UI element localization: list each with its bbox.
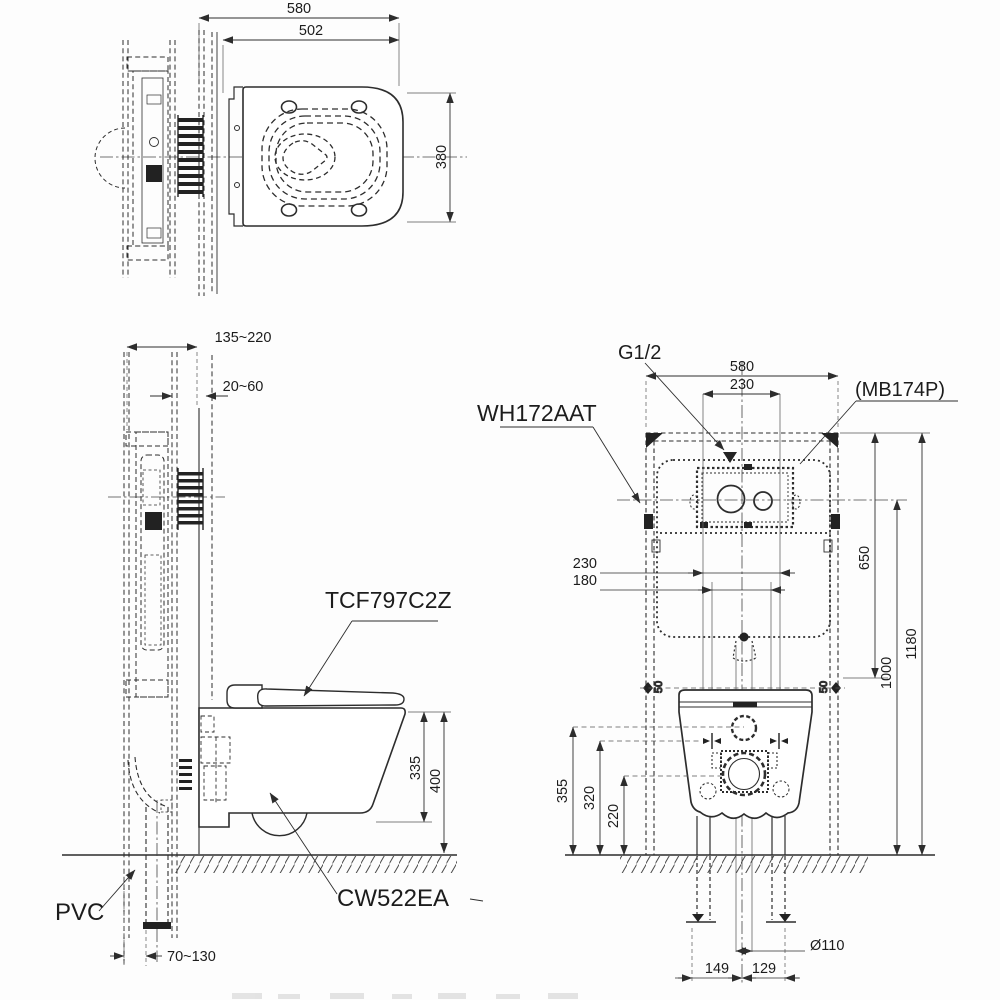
- svg-text:180: 180: [573, 573, 597, 589]
- svg-text:1000: 1000: [879, 657, 895, 689]
- sleeve-small-side: [179, 759, 192, 790]
- front-view: 50 50: [477, 342, 958, 985]
- front-dim-frame-height: 1180: [904, 433, 922, 855]
- front-dim-bolt-line: 320: [582, 741, 700, 855]
- flush-plate: [690, 464, 800, 528]
- toilet-side: [179, 685, 405, 836]
- svg-text:129: 129: [752, 961, 776, 977]
- svg-text:355: 355: [555, 779, 571, 803]
- plan-dim-seat: 502: [223, 23, 399, 93]
- side-view: 135~220 20~60: [55, 330, 483, 968]
- svg-text:580: 580: [730, 359, 754, 375]
- svg-text:20~60: 20~60: [223, 379, 264, 395]
- svg-text:1180: 1180: [904, 628, 920, 659]
- front-dim-span-narrow: 180: [573, 573, 785, 590]
- plan-view: 580 502 380: [95, 1, 467, 296]
- svg-text:TCF797C2Z: TCF797C2Z: [325, 587, 452, 613]
- label-pvc: PVC: [55, 870, 135, 926]
- trap-arc: [252, 813, 307, 836]
- toilet-plan: [229, 87, 403, 226]
- ground-side: [62, 855, 457, 873]
- side-dim-seat-height: 400: [408, 712, 451, 853]
- label-washlet: TCF797C2Z: [304, 587, 452, 696]
- svg-text:CW522EA: CW522EA: [337, 885, 449, 912]
- svg-text:(MB174P): (MB174P): [855, 379, 945, 401]
- scan-artifact: [232, 993, 578, 999]
- front-dim-span-wide: 230: [573, 556, 795, 573]
- cistern-front: [657, 452, 830, 661]
- bowl-front: [679, 690, 812, 818]
- svg-text:230: 230: [573, 556, 597, 572]
- svg-text:400: 400: [428, 769, 444, 793]
- plan-dim-overall: 580: [199, 1, 399, 86]
- drawing-canvas: 580 502 380: [0, 0, 1000, 1000]
- seat-lid: [258, 689, 404, 706]
- gap-left-label: 50: [653, 681, 665, 693]
- flush-button-large: [718, 486, 745, 513]
- toilet-plan-backplate: [229, 87, 243, 226]
- pvc-elbow: [128, 757, 172, 962]
- svg-text:Ø110: Ø110: [810, 938, 844, 954]
- bowl-side-body: [199, 708, 405, 827]
- label-frame: WH172AAT: [477, 400, 640, 503]
- front-dim-foot-offsets: 149 129: [675, 928, 800, 984]
- svg-text:G1/2: G1/2: [618, 342, 661, 364]
- washlet-unit: [227, 685, 262, 708]
- toilet-plan-body: [243, 87, 403, 226]
- front-dim-actuator-height: 1000: [879, 500, 897, 855]
- front-dim-supply: 230: [703, 377, 780, 394]
- installation-drawing: 580 502 380: [0, 0, 1000, 1000]
- svg-text:220: 220: [606, 804, 622, 828]
- svg-text:149: 149: [705, 961, 729, 977]
- svg-text:580: 580: [287, 1, 311, 17]
- label-plate: (MB174P): [800, 379, 958, 464]
- label-supply: G1/2: [618, 342, 724, 450]
- supply-inlet: [723, 452, 737, 463]
- svg-text:230: 230: [730, 377, 754, 393]
- svg-text:320: 320: [582, 786, 598, 810]
- gap-right-label: 50: [818, 681, 830, 693]
- svg-text:335: 335: [408, 756, 424, 780]
- frame-side: [126, 432, 168, 697]
- flush-button-small: [754, 492, 772, 510]
- plan-dim-width: 380: [407, 93, 456, 222]
- ground-front: [565, 855, 935, 873]
- side-dim-outlet-offset: 70~130: [110, 870, 216, 968]
- svg-text:PVC: PVC: [55, 899, 104, 926]
- svg-text:502: 502: [299, 23, 323, 39]
- svg-text:135~220: 135~220: [215, 330, 272, 346]
- svg-text:70~130: 70~130: [167, 949, 216, 965]
- svg-text:650: 650: [857, 546, 873, 570]
- side-dim-finish: 20~60: [150, 379, 263, 396]
- svg-text:WH172AAT: WH172AAT: [477, 400, 597, 426]
